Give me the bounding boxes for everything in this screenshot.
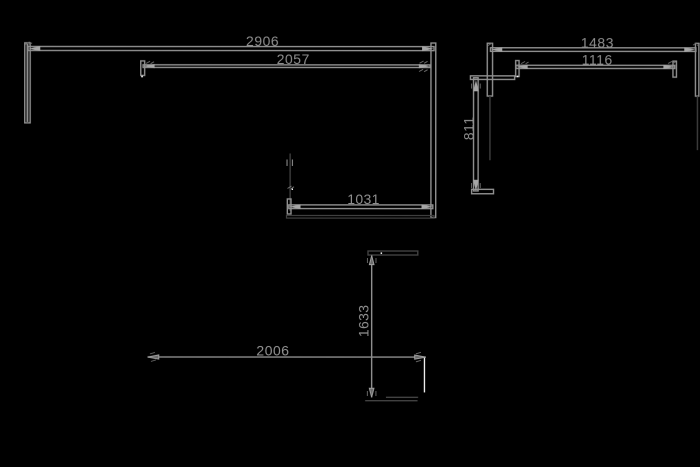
svg-text:2906: 2906 (246, 33, 279, 49)
svg-text:2006: 2006 (256, 342, 289, 358)
svg-text:1116: 1116 (582, 51, 613, 67)
svg-text:1031: 1031 (347, 191, 380, 207)
svg-text:811: 811 (460, 116, 476, 140)
svg-text:1483: 1483 (581, 35, 614, 51)
svg-text:1633: 1633 (356, 305, 372, 338)
svg-text:2057: 2057 (277, 51, 310, 67)
